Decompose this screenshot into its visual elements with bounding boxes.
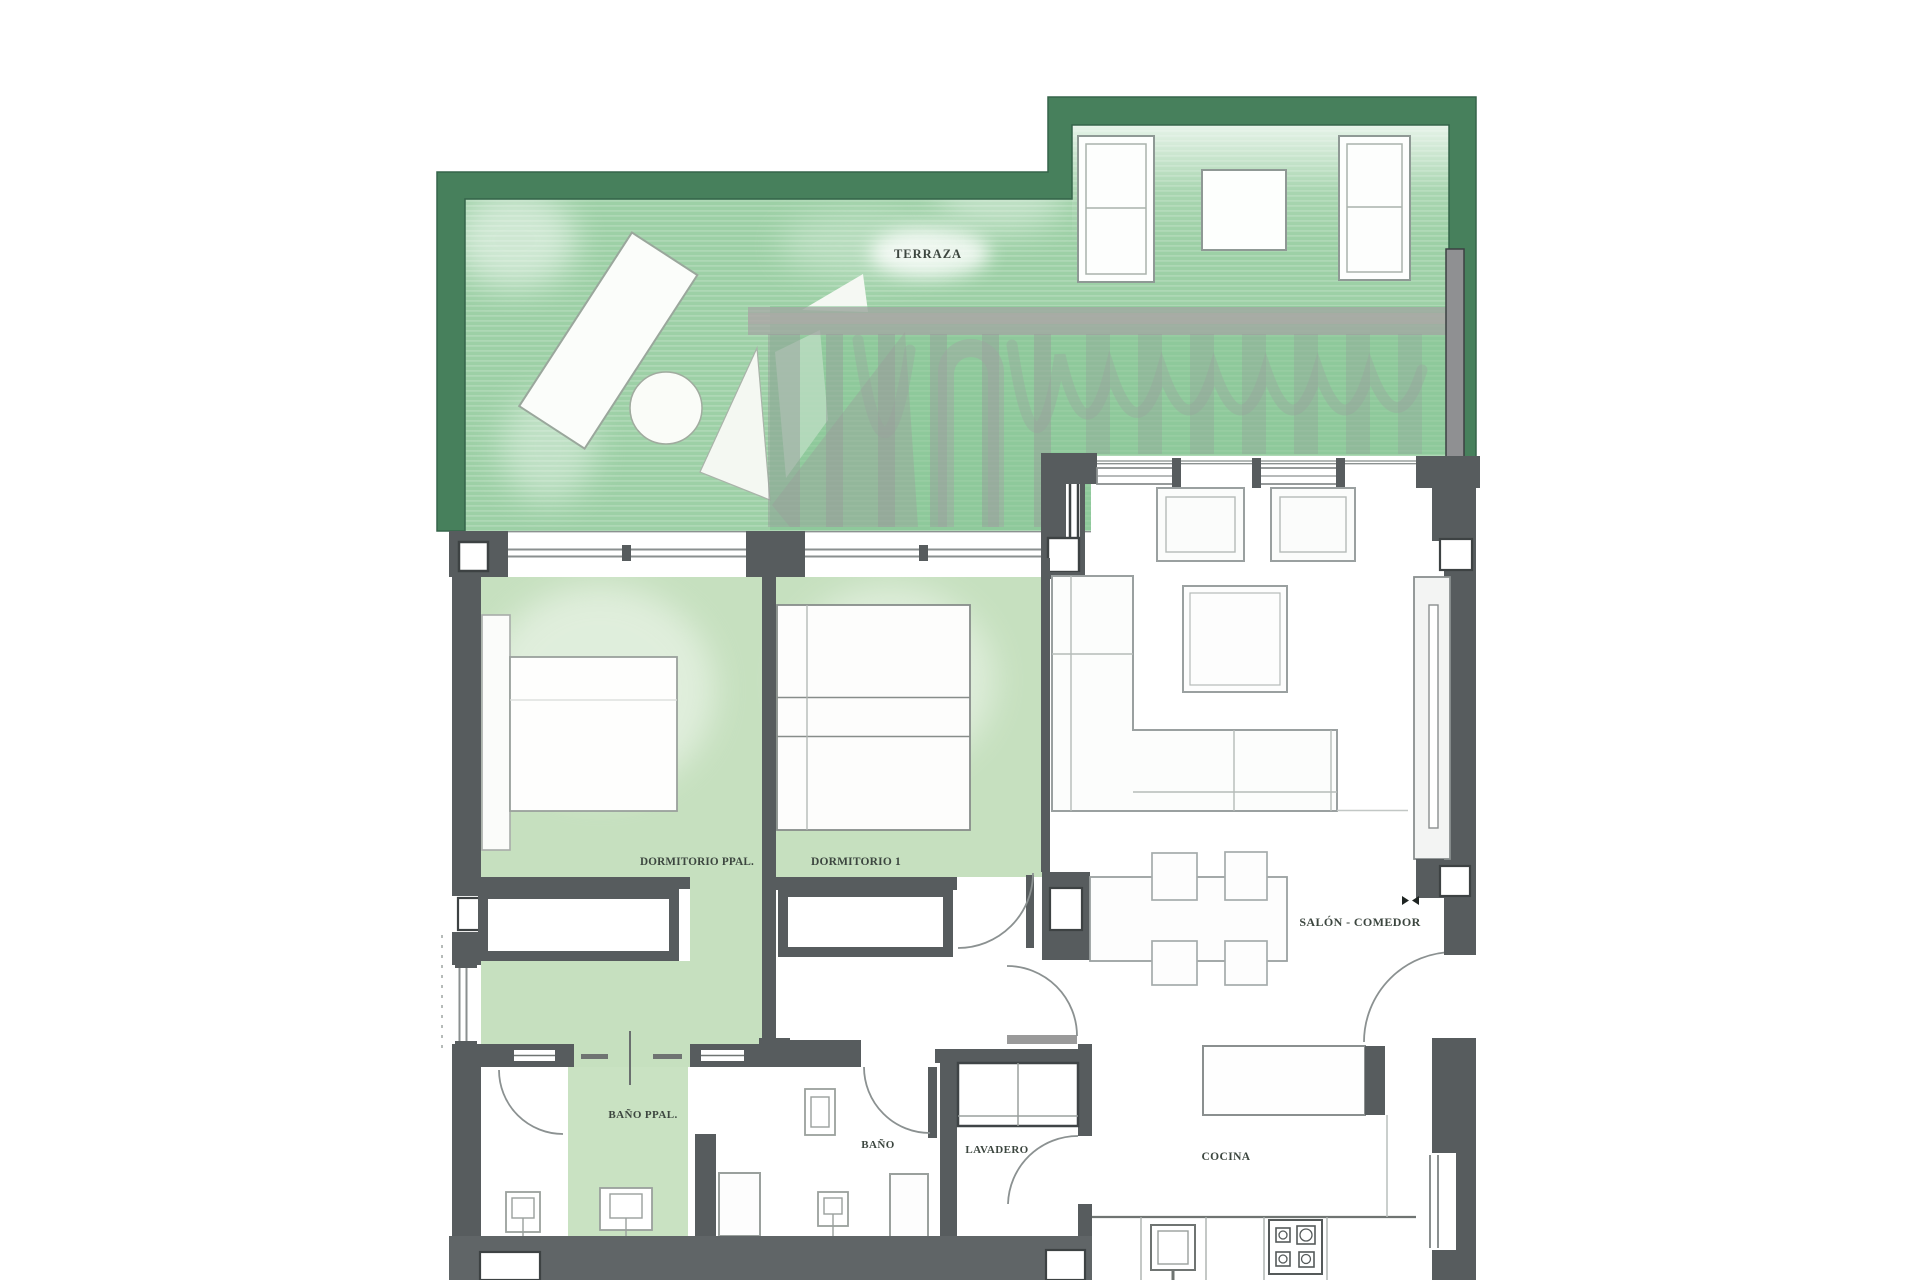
svg-text:DORMITORIO 1: DORMITORIO 1 <box>811 856 901 868</box>
svg-text:BAÑO PPAL.: BAÑO PPAL. <box>608 1109 677 1121</box>
svg-text:SALÓN - COMEDOR: SALÓN - COMEDOR <box>1299 915 1420 929</box>
svg-text:TERRAZA: TERRAZA <box>894 247 962 261</box>
svg-text:LAVADERO: LAVADERO <box>965 1144 1028 1156</box>
svg-text:COCINA: COCINA <box>1201 1151 1250 1163</box>
svg-text:DORMITORIO PPAL.: DORMITORIO PPAL. <box>640 856 754 868</box>
svg-text:BAÑO: BAÑO <box>861 1139 894 1151</box>
